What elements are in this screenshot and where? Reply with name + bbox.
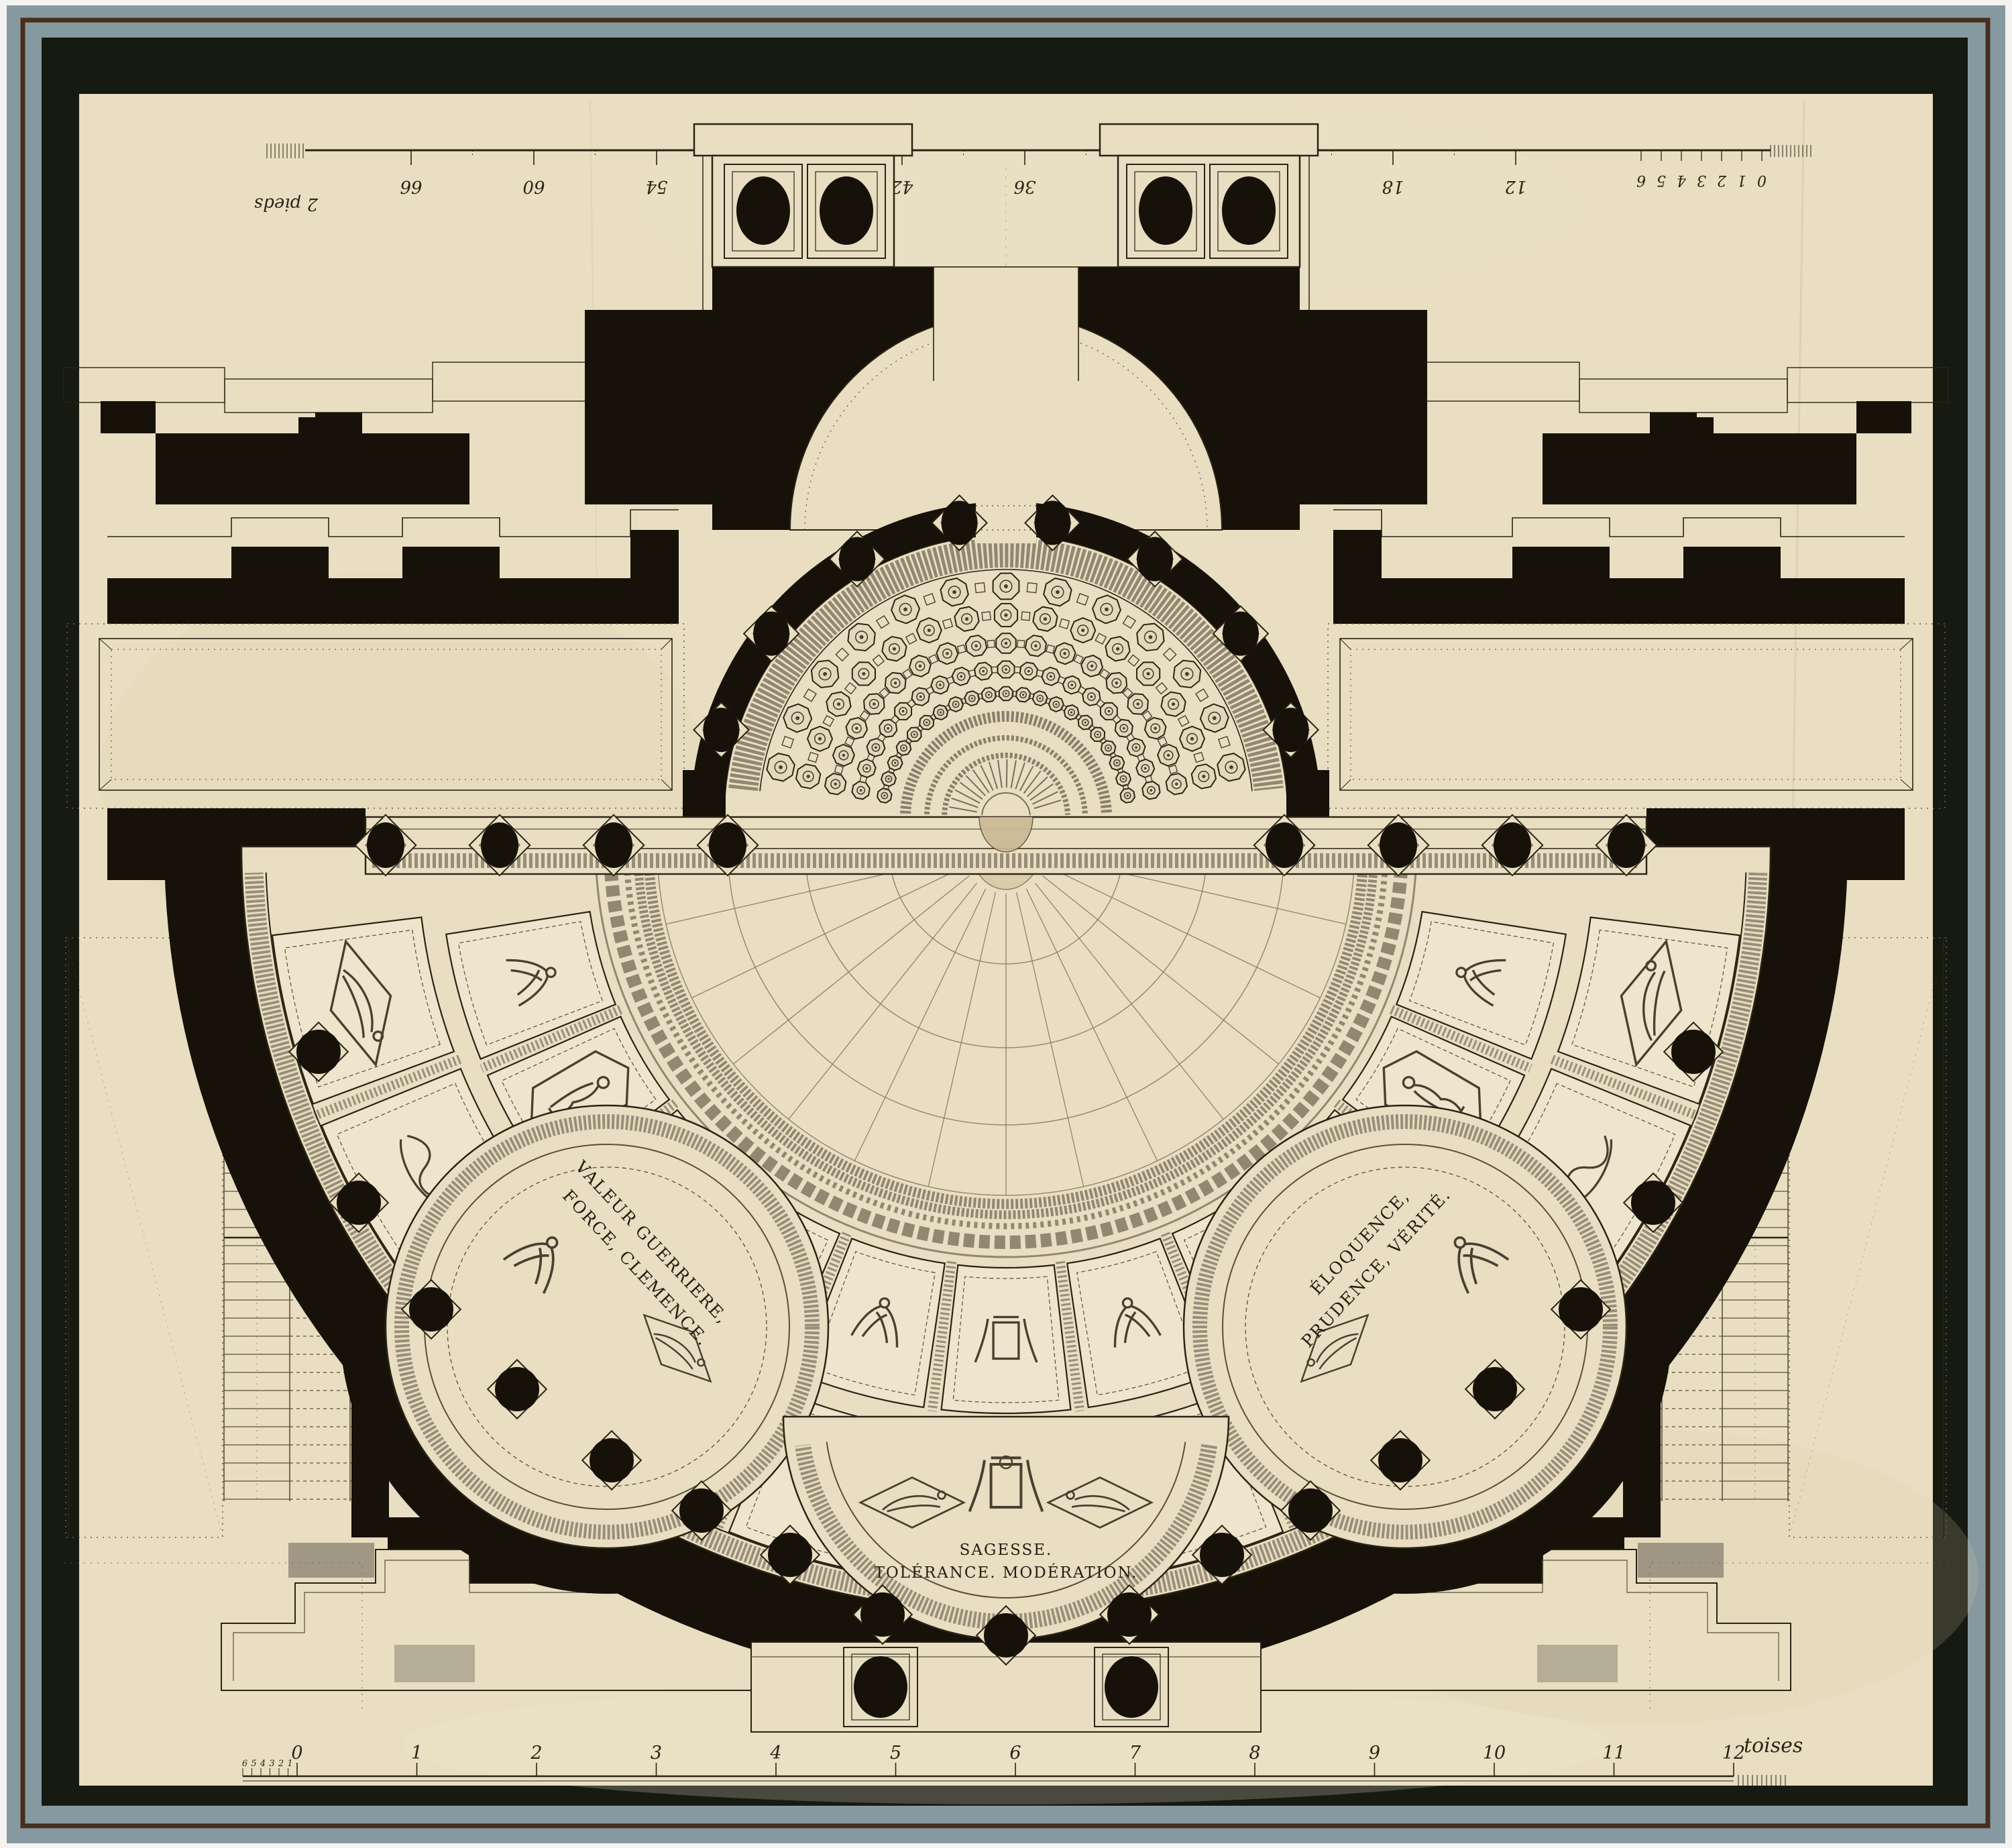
apse-column [1273,708,1309,752]
bottom-scale-feet-mark: 3 [269,1759,274,1769]
top-scale-number: 54 [645,176,667,197]
diameter-entablature [355,815,1657,876]
bottom-scale-number: 7 [1129,1743,1141,1763]
top-scale-number: 4 [1677,172,1687,188]
bottom-scale-feet-mark: 6 [242,1759,247,1769]
entablature-column [1380,822,1417,868]
entablature-column [367,822,404,868]
ceiling-coffer-panel [942,1265,1071,1413]
colonnade-column [337,1181,381,1225]
colonnade-column [860,1592,905,1637]
bottom-scale-feet-mark: 5 [251,1759,256,1769]
apse-block [712,267,1300,530]
portico-column [854,1656,907,1718]
bottom-scale-number: 6 [1009,1743,1021,1763]
top-scale-number: 6 [1636,172,1646,188]
bottom-scale-feet-mark: 1 [287,1759,292,1769]
apse-neck-corridor [934,267,1078,381]
colonnade-column [590,1438,634,1482]
entablature-column [481,822,518,868]
colonnade-column [1378,1438,1422,1482]
entablature-column [1608,822,1645,868]
bottom-scale-number: 10 [1483,1743,1506,1763]
top-scale-label: 2 pieds [254,194,319,214]
apse-column [1034,500,1070,545]
colonnade-column [1200,1533,1244,1577]
colonnade-column [679,1488,724,1533]
colonnade-column [409,1287,453,1331]
top-scale-number: 60 [522,176,545,197]
top-scale-number: 1 [1737,172,1746,188]
colonnade-column [495,1367,539,1411]
top-scale-number: 18 [1382,176,1404,197]
entablature-column [1266,822,1303,868]
ceiling-plan-artwork: 6660544842363024181265432102 pieds 01234… [0,0,2012,1848]
bottom-scale-feet-mark: 2 [278,1759,284,1769]
lunette-inscription-line2: TOLÉRANCE. MODÉRATION. [875,1564,1138,1582]
bottom-scale-number: 1 [411,1743,423,1763]
bottom-scale-number: 3 [651,1743,662,1763]
entablature-column [595,822,632,868]
apse-column [942,500,978,545]
apse-column [839,537,875,581]
entablature-column [1494,822,1531,868]
lunette-inscription-line1: SAGESSE. [960,1541,1053,1559]
top-scale-number: 66 [400,176,422,197]
apse-column [1137,537,1173,581]
bottom-scale-number: 11 [1602,1743,1625,1763]
bottom-scale-number: 12 [1722,1743,1745,1763]
colonnade-column [1631,1181,1675,1225]
entablature-column [709,822,746,868]
apse-column [753,612,789,656]
top-scale-number: 3 [1697,172,1706,188]
top-scale-number: 2 [1717,172,1727,188]
colonnade-column [1671,1030,1716,1074]
apse-column [703,708,739,752]
colonnade-column [1288,1488,1333,1533]
colonnade-column [984,1613,1028,1657]
bottom-scale-number: 2 [530,1743,542,1763]
bottom-scale-number: 0 [291,1743,302,1763]
bottom-scale-feet-mark: 4 [260,1759,266,1769]
colonnade-column [1107,1592,1152,1637]
apse-column [1223,612,1259,656]
bottom-scale-number: 9 [1369,1743,1380,1763]
colonnade-column [1473,1367,1517,1411]
bottom-scale-number: 4 [769,1743,781,1763]
scanned-architectural-drawing: 6660544842363024181265432102 pieds 01234… [0,0,2012,1848]
top-scale-number: 5 [1657,172,1666,188]
colonnade-column [1559,1287,1603,1331]
bottom-scale-number: 5 [890,1743,901,1763]
apse-door-gap [976,492,1036,543]
top-scale-number: 12 [1504,176,1526,197]
colonnade-column [768,1533,812,1577]
portico-column [1105,1656,1158,1718]
top-scale-number: 36 [1013,176,1036,197]
colonnade-column [296,1030,341,1074]
top-scale-number: 0 [1757,172,1767,188]
bottom-scale-label: toises [1744,1734,1803,1757]
bottom-scale-number: 8 [1249,1743,1260,1763]
